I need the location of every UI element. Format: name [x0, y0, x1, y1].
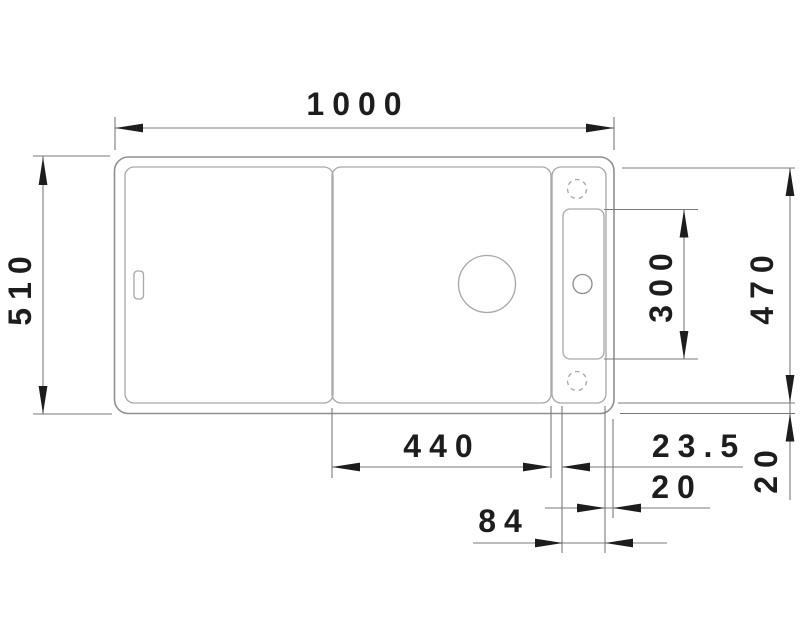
arrow-300-top: [680, 210, 689, 238]
arrow-470-top: [786, 168, 795, 196]
drain-hole: [459, 256, 516, 313]
label-overall-width: 1000: [306, 86, 409, 122]
label-rail-width: 84: [478, 503, 530, 539]
arrow-84-right: [605, 539, 633, 548]
accessory-rail-recess: [563, 209, 604, 359]
technical-drawing-canvas: 1000 510 470 300 440 23.5 20 84 20: [0, 0, 800, 640]
right-deck-area: [552, 167, 606, 403]
label-bowl-width: 440: [403, 428, 480, 464]
optional-tap-hole-top: [568, 180, 587, 199]
arrow-470-bottom: [786, 375, 795, 403]
rail-tap-hole: [573, 275, 592, 294]
dimension-labels: 1000 510 470 300 440 23.5 20 84 20: [2, 86, 784, 539]
label-overall-depth: 510: [2, 248, 38, 325]
label-right-inner-depth: 470: [744, 247, 780, 324]
arrow-20h-left: [577, 504, 605, 513]
sink-dimension-drawing: 1000 510 470 300 440 23.5 20 84 20: [0, 0, 800, 640]
sink-outer-edge: [115, 157, 615, 414]
label-rail-length: 300: [643, 245, 679, 322]
arrow-440-right: [523, 463, 551, 472]
sink-body: [115, 157, 615, 414]
arrow-20h-right: [613, 504, 641, 513]
arrow-300-bottom: [680, 331, 689, 359]
label-bowl-to-rail: 23.5: [652, 428, 746, 464]
label-rail-to-edge: 20: [651, 469, 703, 505]
arrow-1000-right: [586, 124, 614, 133]
optional-tap-hole-bottom: [568, 372, 587, 391]
arrow-20v: [786, 414, 795, 442]
overflow-slot: [134, 271, 144, 299]
arrow-440-left: [332, 463, 360, 472]
arrow-510-top: [39, 157, 48, 185]
arrow-84-left: [535, 539, 563, 548]
drainer-area: [125, 167, 333, 403]
arrow-1000-left: [115, 124, 143, 133]
bowl-area: [332, 167, 551, 403]
arrow-23-5: [562, 463, 590, 472]
arrow-510-bottom: [39, 386, 48, 414]
label-bottom-edge-inset: 20: [748, 442, 784, 494]
